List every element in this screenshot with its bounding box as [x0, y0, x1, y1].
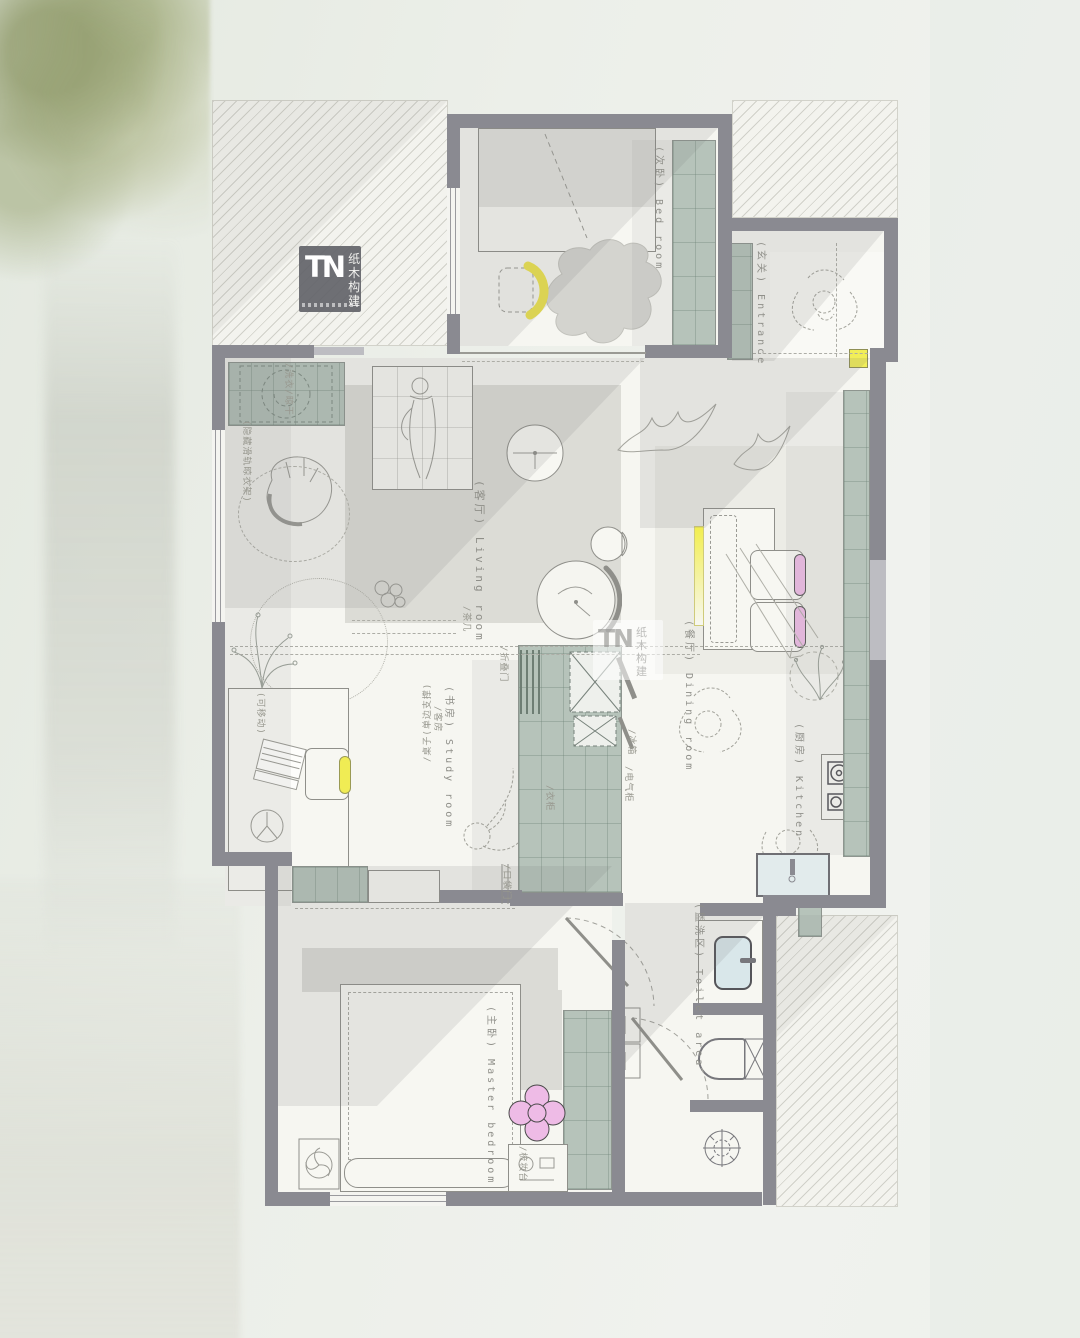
folding-door-stripes: [520, 650, 540, 714]
study-stool-sketch: [247, 806, 287, 846]
toilet-top-cabinet: [798, 903, 822, 937]
living-person-sketch: [380, 372, 465, 487]
watermark-chinese-name: 纸木 构建: [636, 626, 658, 678]
bedroom-fold-line: [535, 132, 595, 242]
wall: [612, 940, 625, 1192]
entrance-stool-yellow: [849, 349, 868, 368]
brand-logo-chinese-name: 纸木 构建: [348, 252, 362, 308]
kitchen-person-sketch: [660, 682, 760, 767]
annotation-tea-table: /茶几: [461, 606, 474, 632]
exterior-hatch-bottom-right: [776, 915, 898, 1207]
wall: [265, 866, 278, 1206]
master-door-arc: [558, 912, 658, 1012]
bedroom-opening-line: [460, 352, 646, 354]
watermark-cn-bottom: 构建: [636, 652, 658, 678]
kitchen-sink: [756, 853, 830, 897]
washbasin-handle: [740, 958, 756, 963]
window: [212, 430, 225, 622]
wall: [645, 345, 732, 358]
study-chair-back-yellow: [339, 756, 351, 794]
room-label-master-bedroom: (主卧) Master bedroom: [485, 1006, 500, 1185]
wall: [212, 345, 314, 358]
study-laptop-sketch: [247, 732, 313, 804]
master-top-cabinet: [292, 866, 368, 903]
exterior-hatch-top-right: [732, 100, 898, 218]
brand-logo-initials: TN: [305, 252, 343, 282]
annotation-wardrobe: /衣柜: [544, 785, 557, 811]
background-ground-path: [0, 880, 240, 1338]
brand-logo-tagline-bar: [302, 303, 358, 307]
wall: [510, 893, 623, 906]
wall-window-segment: [870, 560, 886, 660]
wall: [884, 231, 898, 362]
room-label-toilet-area: (盥洗区) Toilet area: [693, 903, 708, 1068]
wall: [718, 128, 732, 358]
annotation-pocket-door: /口袋门: [501, 864, 514, 900]
bedroom-opening-dashed: [462, 361, 644, 362]
room-label-kitchen: (厨房) Kitchen: [793, 723, 808, 839]
brand-logo-cn-top: 纸木: [348, 252, 362, 280]
annotation-dressing-table: /梳妆台: [517, 1146, 530, 1182]
living-dashed-circle: [238, 466, 350, 562]
entrance-dashed-guide-v: [836, 243, 837, 357]
toilet-washbasin: [714, 936, 752, 990]
wall: [763, 903, 776, 1205]
ac-fan-unit: [298, 1138, 340, 1190]
annotation-movable: (可移动): [255, 692, 268, 735]
watermark-logo: TN 纸木 构建: [593, 620, 663, 680]
watermark-cn-top: 纸木: [636, 626, 658, 652]
flower-pouf-pink: [508, 1084, 566, 1142]
annotation-guest-room: /客房: [432, 706, 445, 732]
partition-track-dashed: [230, 646, 878, 647]
bedroom-wardrobe-cabinet: [672, 140, 716, 346]
wall: [447, 314, 460, 354]
living-stitch-row: [352, 633, 456, 634]
annotation-folding-door: /折叠门: [498, 646, 511, 682]
window: [447, 188, 460, 314]
background-right-tint: [930, 0, 1080, 1338]
wall: [763, 895, 870, 908]
living-round-table: [505, 423, 565, 483]
floor-drain-icon: [700, 1126, 744, 1170]
room-label-study-room: (书房) Study room: [443, 686, 458, 829]
dining-plant-sketch: [792, 642, 848, 704]
wall: [732, 218, 898, 231]
room-label-dining-room: (餐厅) Dining room: [683, 620, 698, 772]
wall: [447, 114, 732, 128]
background-tree-trunk: [45, 240, 175, 960]
window: [330, 1192, 446, 1206]
bedroom-chair-yellow: [492, 258, 554, 322]
annotation-wash-dry: /洗衣/晾干: [283, 363, 296, 416]
kitchen-counter: [843, 390, 870, 857]
study-plant-sketch: [228, 606, 306, 692]
entrance-person-sketch: [778, 262, 870, 350]
wall-art-bird-sketch: [612, 388, 722, 484]
wall: [212, 852, 292, 866]
entrance-dashed-guide-h: [753, 353, 883, 354]
floor-plan-canvas: (次卧) Bed room (玄关) Entrance (客厅) Living …: [0, 0, 1080, 1338]
living-flower-cluster: [368, 576, 410, 616]
wall: [870, 348, 898, 362]
wall-art-bird-sketch: [728, 416, 796, 486]
annotation-hidden-rail-rack: (隐藏滑轨晾衣架): [241, 420, 254, 503]
annotation-fridge: /冰箱: [626, 729, 639, 755]
annotation-electrical-cabinet: /电气柜: [623, 766, 636, 802]
wall: [690, 1100, 763, 1112]
watermark-initials: TN: [598, 626, 632, 652]
room-label-entrance: (玄关) Entrance: [755, 241, 770, 366]
wall: [447, 114, 460, 188]
dining-light-strip-yellow: [694, 526, 704, 626]
master-wardrobe-cabinet: [563, 1010, 612, 1190]
corridor-dashed-line: [295, 908, 515, 909]
room-label-living-room: (客厅) Living room: [472, 480, 488, 643]
living-stitch-row: [352, 620, 456, 621]
closet-niche: [368, 870, 440, 903]
sliding-door-panel: [314, 347, 364, 355]
room-label-bedroom: (次卧) Bed room: [653, 146, 668, 271]
